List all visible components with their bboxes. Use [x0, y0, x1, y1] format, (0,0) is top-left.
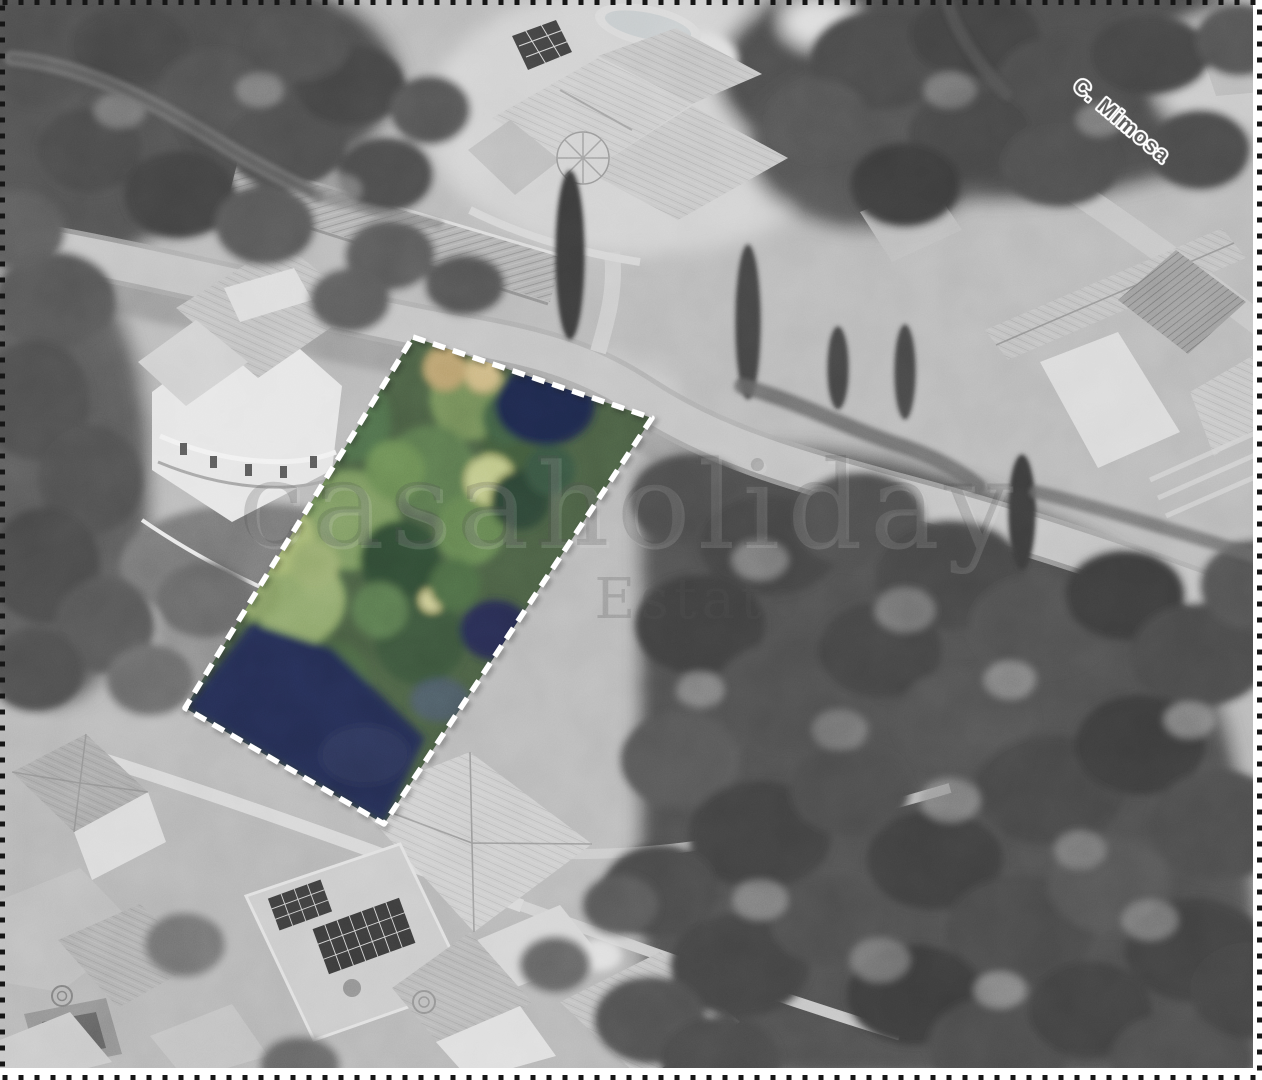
grain-overlay: [0, 0, 1253, 1068]
aerial-photo: casaholiday casaholiday Estate C. Mimosa: [0, 0, 1262, 1080]
aerial-map-view: casaholiday casaholiday Estate C. Mimosa: [0, 0, 1262, 1080]
aerial-photo-canvas: casaholiday casaholiday Estate C. Mimosa: [0, 0, 1262, 1080]
